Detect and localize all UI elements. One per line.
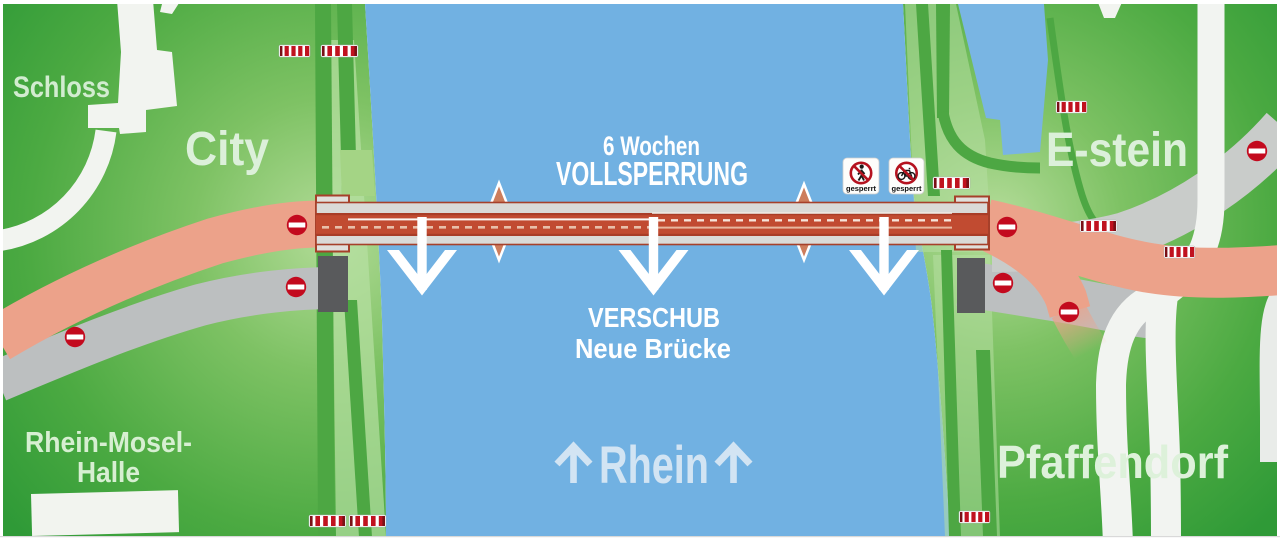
svg-text:Pfaffendorf: Pfaffendorf <box>997 436 1229 488</box>
svg-text:City: City <box>185 123 269 176</box>
svg-text:Neue Brücke: Neue Brücke <box>575 333 731 364</box>
svg-text:gesperrt: gesperrt <box>892 184 922 193</box>
svg-text:VERSCHUB: VERSCHUB <box>588 302 720 333</box>
svg-text:Halle: Halle <box>77 457 140 489</box>
svg-text:Rhein-Mosel-: Rhein-Mosel- <box>25 427 192 459</box>
svg-text:E-stein: E-stein <box>1046 124 1188 177</box>
svg-text:Rhein: Rhein <box>599 436 709 495</box>
svg-text:gesperrt: gesperrt <box>846 184 876 193</box>
svg-text:Schloss: Schloss <box>13 71 110 104</box>
svg-text:VOLLSPERRUNG: VOLLSPERRUNG <box>556 155 748 192</box>
